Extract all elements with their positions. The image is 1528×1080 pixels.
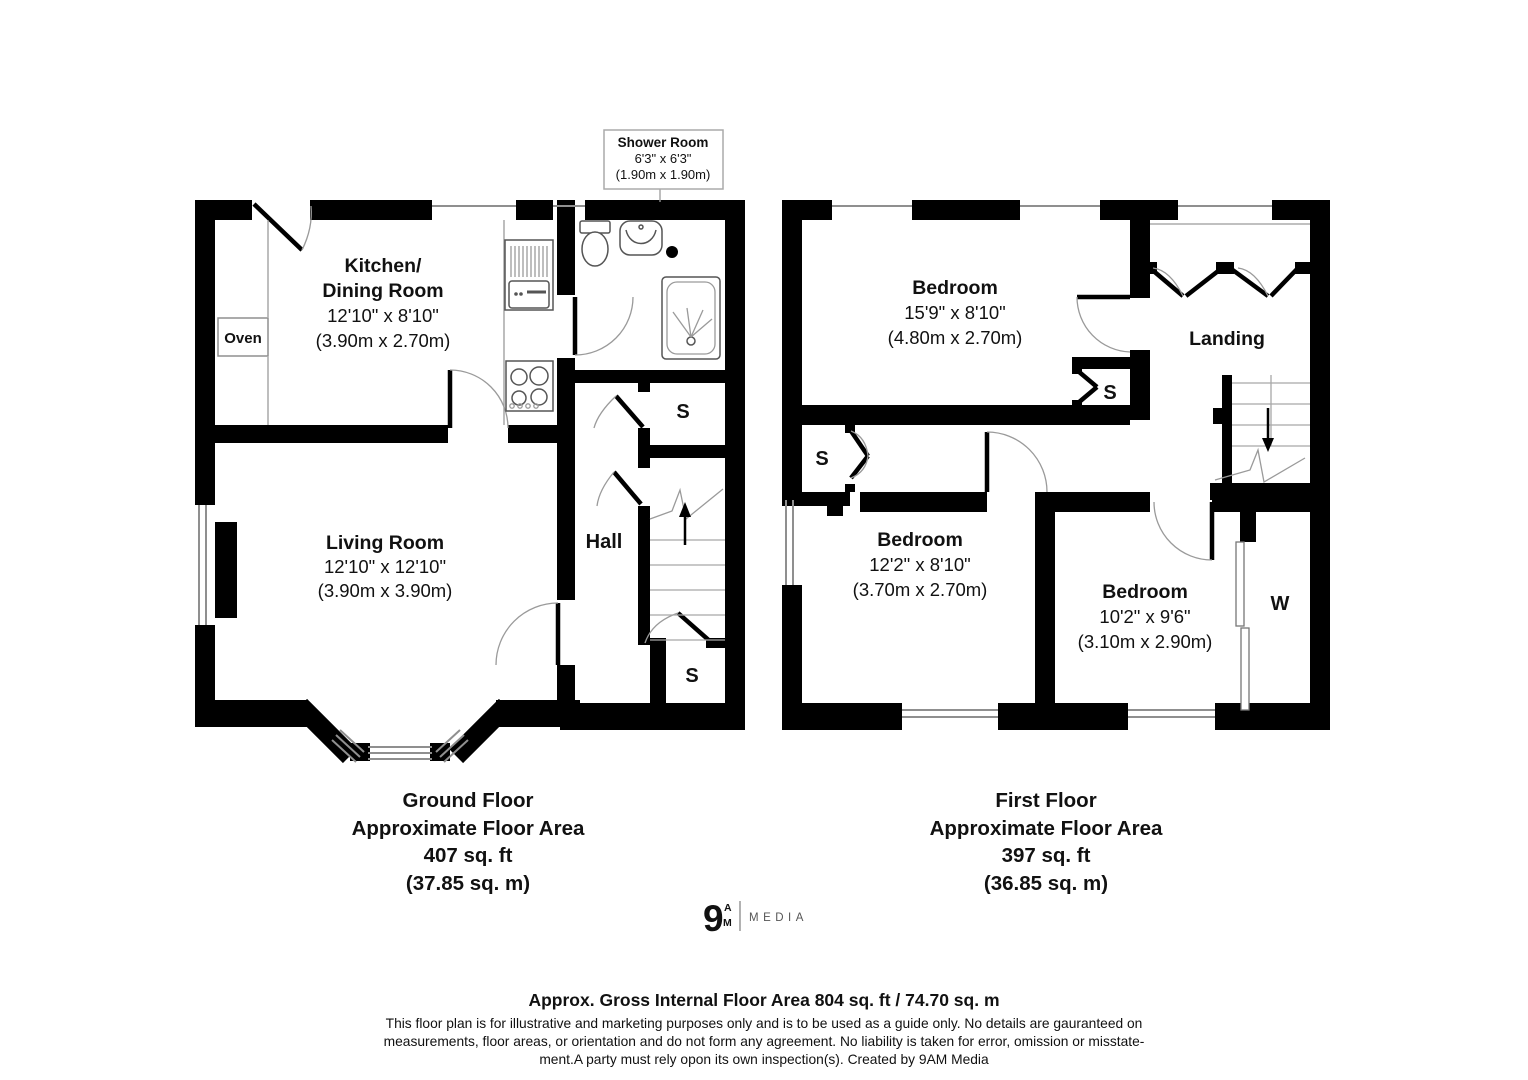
ground-floor-title: Ground Floor Approximate Floor Area 407 … <box>352 789 585 895</box>
stairs-down-arrow <box>1262 438 1274 452</box>
shower-room-label: Shower Room 6'3" x 6'3" (1.90m x 1.90m) <box>604 130 723 202</box>
svg-text:(3.90m x 2.70m): (3.90m x 2.70m) <box>316 330 451 351</box>
svg-text:(3.10m x 2.90m): (3.10m x 2.90m) <box>1078 631 1213 652</box>
svg-text:Approximate Floor Area: Approximate Floor Area <box>930 817 1163 840</box>
disclaimer-line2: measurements, floor areas, or orientatio… <box>384 1034 1145 1049</box>
svg-text:(3.70m x 2.70m): (3.70m x 2.70m) <box>853 579 988 600</box>
shower-tray <box>662 277 720 359</box>
landing-label: Landing <box>1189 328 1265 350</box>
logo-numeral: 9 <box>703 898 724 939</box>
svg-text:(36.85 sq. m): (36.85 sq. m) <box>984 872 1108 895</box>
ground-stairs <box>650 489 725 640</box>
svg-text:397 sq. ft: 397 sq. ft <box>1002 844 1091 867</box>
ground-room-labels: Kitchen/ Dining Room 12'10" x 8'10" (3.9… <box>224 255 698 687</box>
svg-text:407 sq. ft: 407 sq. ft <box>424 844 513 867</box>
svg-text:(3.90m x 3.90m): (3.90m x 3.90m) <box>318 580 453 601</box>
bedroom1-label: Bedroom <box>912 277 998 299</box>
storage-label-left: S <box>815 448 828 470</box>
logo-letter-a: A <box>724 902 732 914</box>
svg-text:Ground Floor: Ground Floor <box>403 789 534 812</box>
svg-text:12'10" x 8'10": 12'10" x 8'10" <box>327 305 439 326</box>
bedroom3-label: Bedroom <box>1102 581 1188 603</box>
storage-label-top: S <box>676 401 689 423</box>
footer-text: Approx. Gross Internal Floor Area 804 sq… <box>384 990 1145 1067</box>
stairs-up-arrow <box>679 502 691 517</box>
sink <box>620 221 662 255</box>
logo-word: MEDIA <box>749 912 808 924</box>
svg-text:15'9" x 8'10": 15'9" x 8'10" <box>904 302 1005 323</box>
fridge-unit <box>505 240 553 310</box>
disclaimer-line1: This floor plan is for illustrative and … <box>386 1016 1143 1031</box>
bedroom2-label: Bedroom <box>877 529 963 551</box>
floorplan-canvas: Shower Room 6'3" x 6'3" (1.90m x 1.90m) … <box>0 0 1528 1080</box>
toilet-bowl <box>582 232 608 266</box>
svg-text:12'2" x 8'10": 12'2" x 8'10" <box>869 554 970 575</box>
hall-label: Hall <box>586 531 623 553</box>
living-room-label: Living Room <box>326 532 444 554</box>
wardrobe-doors <box>1236 542 1249 710</box>
kitchen-label: Kitchen/ <box>345 255 423 277</box>
svg-text:12'10" x 12'10": 12'10" x 12'10" <box>324 556 446 577</box>
9am-media-logo: 9 A M MEDIA <box>703 898 808 939</box>
svg-text:10'2" x 9'6": 10'2" x 9'6" <box>1099 606 1190 627</box>
svg-text:(37.85 sq. m): (37.85 sq. m) <box>406 872 530 895</box>
toilet-tank <box>580 221 610 233</box>
shower-room-fixtures <box>580 221 720 359</box>
shower-room-metric: (1.90m x 1.90m) <box>616 167 711 182</box>
svg-text:First Floor: First Floor <box>995 789 1096 812</box>
storage-label-right: S <box>1103 382 1116 404</box>
shower-room-title: Shower Room <box>618 135 709 150</box>
logo-letter-m: M <box>723 917 732 929</box>
disclaimer-line3: ment.A party must rely opon its own insp… <box>539 1052 989 1067</box>
shower-room-dims: 6'3" x 6'3" <box>635 151 692 166</box>
oven-label: Oven <box>224 330 262 347</box>
wardrobe-label: W <box>1271 593 1290 615</box>
gross-area-headline: Approx. Gross Internal Floor Area 804 sq… <box>528 990 999 1010</box>
drain-dot <box>666 246 678 258</box>
storage-label-bottom: S <box>685 665 698 687</box>
svg-text:Dining Room: Dining Room <box>322 280 443 302</box>
first-floor-title: First Floor Approximate Floor Area 397 s… <box>930 789 1163 895</box>
first-floor-plan: Bedroom 15'9" x 8'10" (4.80m x 2.70m) La… <box>782 200 1330 895</box>
ground-floor-plan: Shower Room 6'3" x 6'3" (1.90m x 1.90m) … <box>195 130 745 895</box>
svg-text:(4.80m x 2.70m): (4.80m x 2.70m) <box>888 327 1023 348</box>
svg-text:Approximate Floor Area: Approximate Floor Area <box>352 817 585 840</box>
